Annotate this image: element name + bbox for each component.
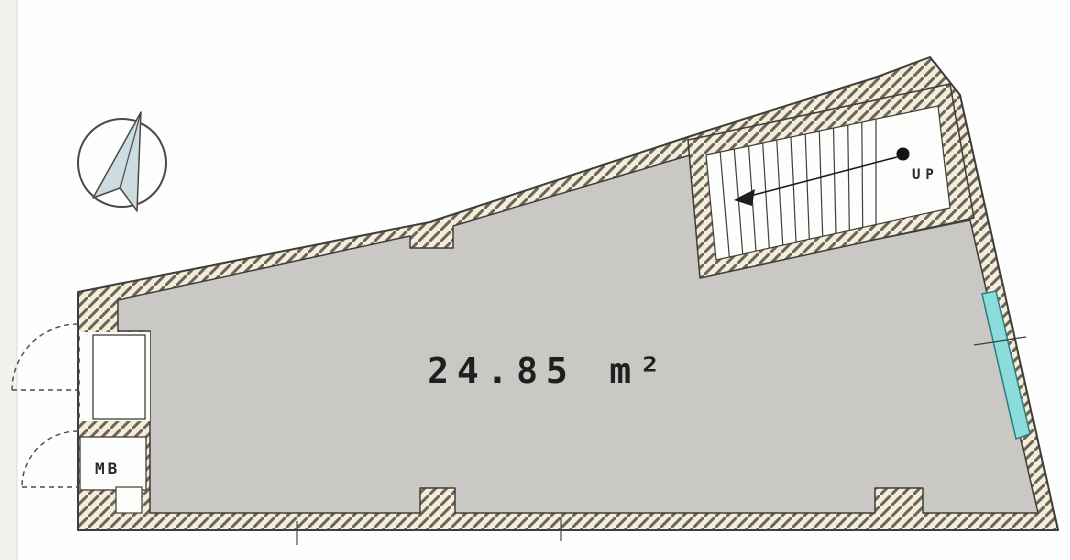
up-label: UP (912, 167, 939, 183)
mb-label: MB (95, 459, 120, 478)
area-value: 24.85 (427, 351, 575, 392)
area-unit: m² (609, 351, 668, 392)
floor-plan-page: UP MB 24.85 m² (0, 0, 1070, 560)
mailbox-notch (116, 487, 142, 513)
entrance-door-frame (93, 335, 145, 419)
area-label: 24.85 m² (427, 351, 668, 392)
floor-plan-canvas: UP MB 24.85 m² (0, 0, 1070, 560)
stair-start-dot (897, 148, 910, 161)
entrance (80, 332, 150, 421)
scan-edge-strip (0, 0, 17, 560)
